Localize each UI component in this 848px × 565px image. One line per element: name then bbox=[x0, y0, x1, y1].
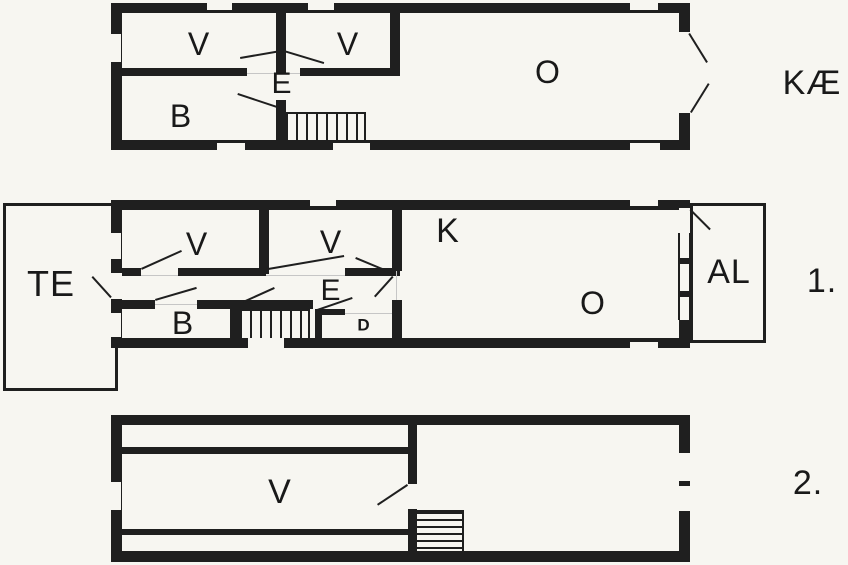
wall bbox=[392, 200, 402, 271]
threshold-line bbox=[396, 271, 397, 300]
wall bbox=[259, 210, 269, 274]
wall bbox=[111, 3, 122, 150]
wall bbox=[300, 68, 400, 76]
room-label-bath: B bbox=[170, 100, 192, 132]
room-label-bedroom: V bbox=[268, 475, 292, 509]
room-label-bedroom-2: V bbox=[337, 28, 359, 60]
window bbox=[310, 200, 336, 206]
threshold-line bbox=[345, 313, 392, 314]
door-opening bbox=[679, 32, 690, 113]
wall bbox=[111, 3, 690, 13]
door-swing bbox=[283, 50, 324, 64]
staircase bbox=[286, 112, 366, 140]
wall bbox=[390, 13, 400, 74]
door-opening bbox=[679, 208, 690, 233]
floor-label-1: 1. bbox=[807, 264, 837, 298]
floor-plan-canvas: V V E B O KÆ bbox=[0, 0, 848, 565]
balcony-label: AL bbox=[707, 255, 751, 289]
wall bbox=[122, 68, 247, 76]
window bbox=[217, 143, 245, 150]
wall bbox=[408, 509, 417, 551]
window bbox=[630, 143, 660, 150]
wall bbox=[392, 300, 402, 348]
window bbox=[630, 200, 658, 206]
window bbox=[630, 342, 658, 348]
window bbox=[630, 3, 658, 10]
floor-label-basement: KÆ bbox=[783, 66, 842, 100]
room-label-living: O bbox=[535, 56, 561, 88]
wall bbox=[111, 551, 690, 562]
staircase bbox=[417, 510, 464, 551]
terrace-label: TE bbox=[27, 266, 75, 302]
room-label-hall: E bbox=[320, 276, 341, 306]
window bbox=[679, 486, 690, 511]
door-swing bbox=[141, 250, 182, 270]
wall bbox=[178, 268, 266, 276]
wall bbox=[111, 415, 690, 425]
wall bbox=[122, 268, 141, 276]
room-label-bath: B bbox=[172, 307, 194, 339]
wall bbox=[197, 300, 313, 309]
window bbox=[108, 313, 121, 337]
door-swing bbox=[374, 276, 394, 297]
door-swing bbox=[155, 287, 197, 301]
window bbox=[108, 482, 121, 510]
room-label-living: O bbox=[580, 287, 606, 319]
floor-label-2: 2. bbox=[793, 466, 823, 500]
wall bbox=[111, 140, 690, 150]
wall bbox=[122, 300, 155, 309]
wall bbox=[122, 447, 408, 454]
door-swing bbox=[377, 484, 408, 506]
window-mullion bbox=[678, 291, 691, 297]
wall bbox=[230, 300, 240, 348]
window bbox=[679, 453, 690, 481]
window-band bbox=[678, 233, 691, 320]
room-label-kitchen: K bbox=[436, 214, 460, 248]
window bbox=[207, 3, 232, 10]
window bbox=[108, 233, 121, 259]
staircase bbox=[240, 309, 310, 338]
window bbox=[308, 3, 334, 10]
room-label-bedroom-1: V bbox=[188, 28, 210, 60]
room-label-hall: E bbox=[271, 69, 292, 99]
opening-under-stairs bbox=[248, 338, 284, 348]
entrance-opening bbox=[111, 273, 122, 299]
threshold-line bbox=[141, 275, 178, 276]
window-mullion bbox=[678, 258, 691, 264]
room-label-bedroom-2: V bbox=[320, 226, 342, 258]
wall bbox=[408, 425, 417, 484]
room-label-bedroom-1: V bbox=[186, 228, 208, 260]
wall bbox=[276, 13, 286, 74]
window bbox=[333, 143, 370, 150]
door-swing bbox=[688, 33, 708, 63]
room-label-wc: D bbox=[357, 317, 370, 334]
door-swing bbox=[690, 83, 710, 113]
wall bbox=[122, 529, 408, 535]
window bbox=[108, 34, 121, 62]
